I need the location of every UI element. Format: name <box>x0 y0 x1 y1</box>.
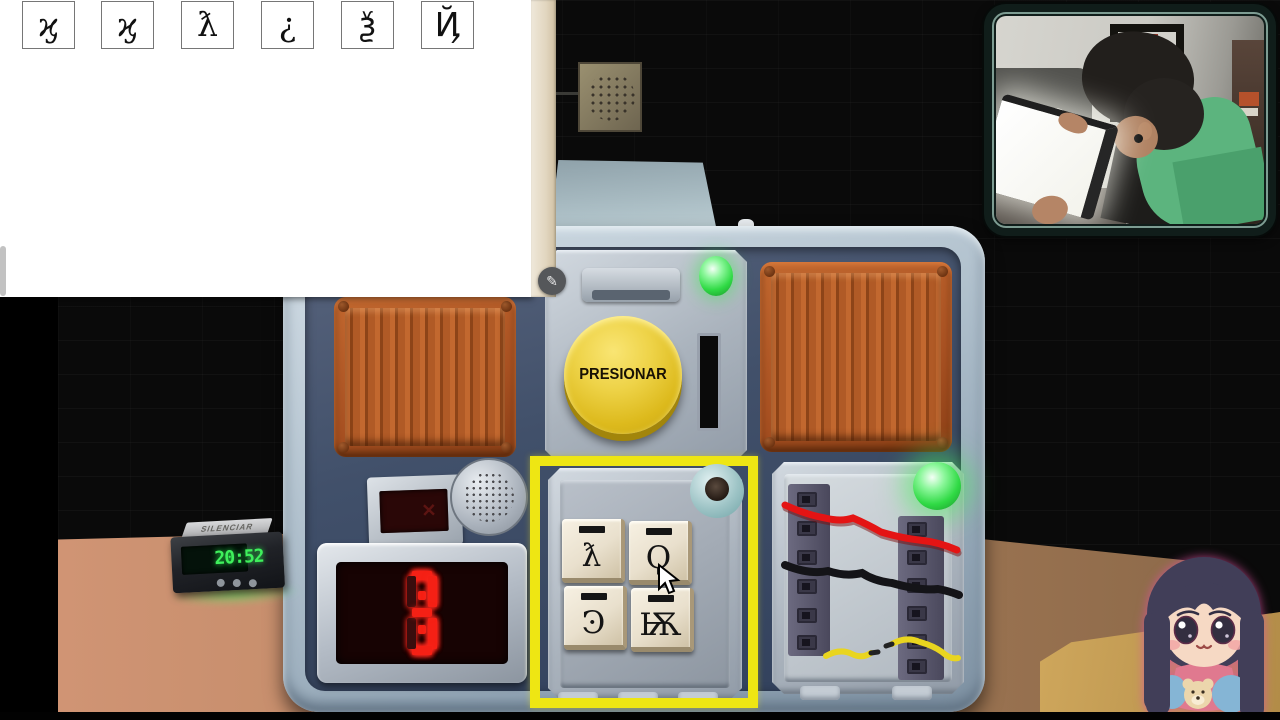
webcam-video <box>996 16 1264 224</box>
wire-cut-end <box>886 644 892 646</box>
alarm-clock[interactable]: SILENCIAR 20:52 <box>170 517 305 620</box>
speaker-grille <box>587 73 635 121</box>
strikes-screen: ✕ ✕ <box>379 489 448 533</box>
clock-button <box>249 579 257 587</box>
camera-eye-iris <box>705 477 729 501</box>
yellow-wire-cut-right[interactable] <box>892 639 958 658</box>
button-module-led <box>699 256 733 296</box>
timer-module <box>317 543 527 683</box>
screw <box>937 266 948 277</box>
screw <box>501 301 512 312</box>
manual-page: Ϙ Ѧ ƛ Ϟ Ѭ ϗ Ӭ Ϙ Ͽ Ҩ ☆ ϗ © Ѽ Ҩ Җ Ѯ ƛ б ¶ … <box>0 0 531 297</box>
webcam-overlay <box>984 4 1276 236</box>
pencil-tool-button[interactable]: ✎ <box>538 267 566 295</box>
key-symbol: ƛ <box>562 533 621 579</box>
clock-body: 20:52 <box>170 532 285 594</box>
manual-symbol: ѯ <box>341 1 394 49</box>
wire-cut-end <box>871 652 878 653</box>
wall-speaker <box>578 62 642 132</box>
screw <box>338 301 349 312</box>
keypad-key-1[interactable]: ƛ <box>562 519 625 583</box>
streamer-avatar <box>1128 552 1280 720</box>
bomb-buzzer-speaker <box>450 458 528 536</box>
timer-display <box>336 562 508 664</box>
key-led <box>581 593 607 600</box>
module-tab <box>800 686 840 700</box>
screw <box>764 437 775 448</box>
clock-screen: 20:52 <box>181 543 248 574</box>
earbud <box>1134 134 1143 143</box>
left-shadow <box>0 297 58 720</box>
red-wire[interactable] <box>785 505 957 550</box>
screw <box>764 266 775 277</box>
manual-page-edge <box>531 0 556 297</box>
module-cover-top-left <box>334 297 516 457</box>
manual-symbol: Ҋ <box>421 1 474 49</box>
manual-symbol: ƛ <box>181 1 234 49</box>
black-wire[interactable] <box>785 565 959 595</box>
camera-eye <box>690 464 744 518</box>
letterbox-bar <box>0 712 1280 720</box>
keypad-key-3[interactable]: Ͽ <box>564 586 627 650</box>
key-led <box>579 526 605 533</box>
mouse-cursor <box>655 563 685 599</box>
manual-symbol: ϗ <box>22 1 75 49</box>
screw <box>937 437 948 448</box>
screw <box>338 442 349 453</box>
clock-button <box>217 579 225 587</box>
button-indicator-strip <box>697 333 721 431</box>
module-tab <box>892 686 932 700</box>
screw <box>501 442 512 453</box>
game-screen: SILENCIAR 20:52 PRESIONAR <box>0 0 1280 720</box>
strikes-display-box: ✕ ✕ <box>367 474 463 547</box>
key-symbol: Ѭ <box>631 602 690 648</box>
key-led <box>646 528 672 535</box>
presionar-label: PRESIONAR <box>569 316 678 434</box>
hinge-slot <box>592 290 670 300</box>
cover-ribs <box>345 308 505 446</box>
key-symbol: Ͽ <box>564 600 623 646</box>
yellow-wire-cut-left[interactable] <box>826 651 871 656</box>
lid-hinge <box>582 268 680 302</box>
buzzer-grille <box>464 472 514 522</box>
cover-ribs <box>771 273 941 441</box>
module-cover-top-right <box>760 262 952 452</box>
manual-symbol: ϗ <box>101 1 154 49</box>
clock-button <box>233 579 241 587</box>
scrollbar-thumb[interactable] <box>0 246 6 296</box>
shelf-item <box>1239 92 1259 106</box>
clock-time: 20:52 <box>214 543 265 574</box>
manual-symbol: ¿ <box>261 1 314 49</box>
presionar-button[interactable]: PRESIONAR <box>564 316 682 434</box>
wires-graphic <box>770 460 970 700</box>
